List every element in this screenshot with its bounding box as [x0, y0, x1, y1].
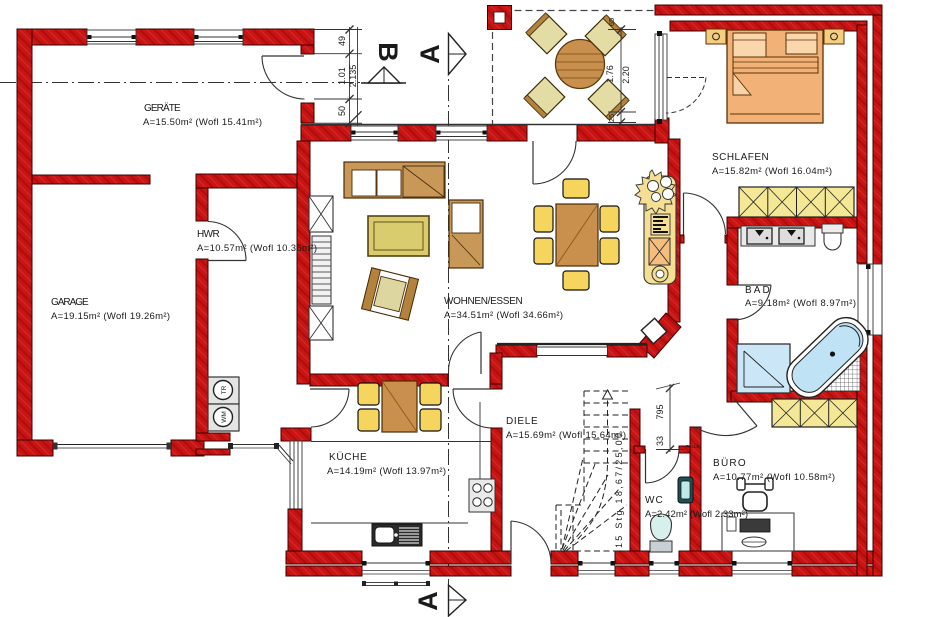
- svg-text:795: 795: [655, 404, 665, 419]
- svg-text:A=15.69m² (Wofl 15.64m²): A=15.69m² (Wofl 15.64m²): [506, 430, 626, 441]
- svg-text:65: 65: [607, 18, 616, 26]
- svg-text:50: 50: [337, 106, 347, 116]
- svg-text:SCHLAFEN: SCHLAFEN: [712, 152, 769, 163]
- svg-text:A=15.50m² (Wofl 15.41m²): A=15.50m² (Wofl 15.41m²): [143, 117, 262, 128]
- svg-text:WM: WM: [221, 411, 228, 423]
- svg-text:A=2.42m² (Wofl 2.33m²): A=2.42m² (Wofl 2.33m²): [645, 509, 748, 520]
- svg-text:A=14.19m² (Wofl 13.97m²): A=14.19m² (Wofl 13.97m²): [327, 466, 446, 477]
- svg-text:KÜCHE: KÜCHE: [329, 451, 367, 463]
- svg-text:A=19.15m² (Wofl 19.26m²): A=19.15m² (Wofl 19.26m²): [51, 311, 170, 322]
- svg-text:33: 33: [655, 436, 665, 446]
- svg-text:FALLR.: FALLR.: [686, 444, 701, 449]
- svg-text:A=10.57m² (Wofl 10.36m²): A=10.57m² (Wofl 10.36m²): [197, 243, 317, 254]
- svg-text:2.135: 2.135: [348, 65, 358, 88]
- svg-text:1.01: 1.01: [337, 67, 347, 85]
- svg-text:GARAGE: GARAGE: [51, 297, 89, 308]
- svg-text:DIELE: DIELE: [506, 416, 538, 427]
- svg-text:BAD: BAD: [745, 285, 770, 296]
- svg-text:A=15.82m² (Wofl 16.04m²): A=15.82m² (Wofl 16.04m²): [712, 166, 832, 177]
- svg-text:GERÄTE: GERÄTE: [144, 102, 181, 114]
- svg-text:A=9.18m² (Wofl 8.97m²): A=9.18m² (Wofl 8.97m²): [745, 298, 856, 309]
- svg-text:B: B: [373, 42, 403, 62]
- svg-text:49: 49: [337, 36, 347, 46]
- svg-text:A: A: [415, 44, 445, 64]
- svg-text:A=10.77m² (Wofl 10.58m²): A=10.77m² (Wofl 10.58m²): [713, 472, 835, 483]
- svg-text:BÜRO: BÜRO: [713, 457, 746, 469]
- svg-text:TR: TR: [221, 385, 228, 394]
- svg-text:2.20: 2.20: [621, 66, 631, 84]
- svg-text:WC: WC: [645, 495, 663, 506]
- svg-text:A=34.51m² (Wofl 34.66m²): A=34.51m² (Wofl 34.66m²): [444, 310, 563, 321]
- svg-text:A: A: [413, 591, 443, 611]
- svg-text:WOHNEN/ESSEN: WOHNEN/ESSEN: [444, 296, 523, 307]
- svg-text:HWR: HWR: [197, 229, 220, 240]
- svg-text:1.76: 1.76: [605, 65, 615, 83]
- svg-text:25: 25: [607, 114, 616, 122]
